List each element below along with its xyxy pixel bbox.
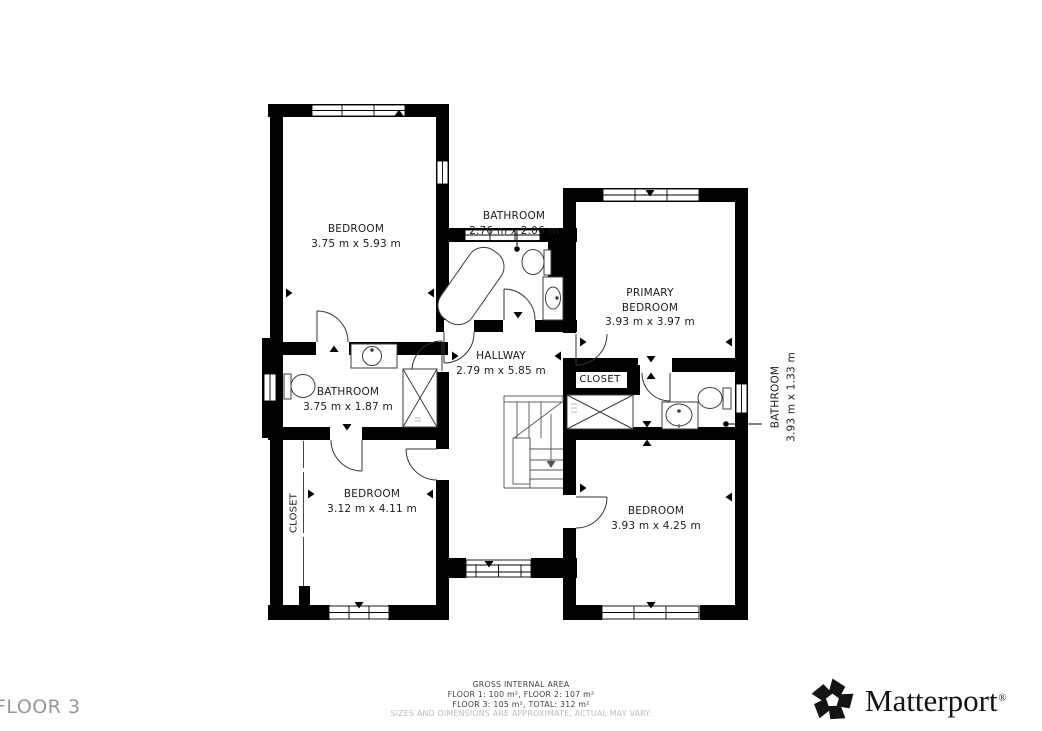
door xyxy=(317,311,348,342)
matterport-pinwheel-icon xyxy=(809,677,856,724)
window xyxy=(312,105,405,116)
room-name: PRIMARY xyxy=(605,286,695,301)
room-label-bedroom-top-left: BEDROOM 3.75 m x 5.93 m xyxy=(311,222,401,251)
staircase xyxy=(504,396,563,488)
room-name: BEDROOM xyxy=(605,301,695,316)
door xyxy=(642,373,670,401)
toilet-icon xyxy=(522,250,551,276)
room-dimensions: 3.93 m x 4.25 m xyxy=(611,519,701,534)
room-name: BATHROOM xyxy=(769,352,785,442)
floor-plan-page: BEDROOM 3.75 m x 5.93 m BATHROOM 2.76 m … xyxy=(0,0,1042,731)
stairs-down-arrow-icon xyxy=(547,461,556,468)
room-dimensions: 3.93 m x 1.33 m xyxy=(784,352,800,442)
room-label-bathroom-right: BATHROOM 3.93 m x 1.33 m xyxy=(769,352,800,442)
sink-icon xyxy=(351,344,397,368)
window xyxy=(736,384,747,413)
matterport-logo: Matterport® xyxy=(809,677,1006,724)
room-label-hallway: HALLWAY 2.79 m x 5.85 m xyxy=(456,349,546,378)
room-name: BEDROOM xyxy=(311,222,401,237)
room-label-bathroom-top: BATHROOM 2.76 m x 2.06 m xyxy=(469,209,559,238)
door xyxy=(406,449,437,480)
room-name: BEDROOM xyxy=(327,487,417,502)
room-dimensions: 3.75 m x 5.93 m xyxy=(311,237,401,252)
toilet-icon xyxy=(698,388,731,410)
room-name: BEDROOM xyxy=(611,504,701,519)
room-label-closet-left: CLOSET xyxy=(286,493,302,533)
window xyxy=(602,606,699,619)
door xyxy=(576,497,607,528)
room-dimensions: 2.79 m x 5.85 m xyxy=(456,364,546,379)
room-label-primary-bedroom: PRIMARY BEDROOM 3.93 m x 3.97 m xyxy=(605,286,695,330)
room-dimensions: 2.76 m x 2.06 m xyxy=(469,224,559,239)
room-dimensions: 3.93 m x 3.97 m xyxy=(605,315,695,330)
window xyxy=(466,560,531,577)
room-label-closet-right: CLOSET xyxy=(579,374,620,385)
room-label-bathroom-left: BATHROOM 3.75 m x 1.87 m xyxy=(303,385,393,414)
window xyxy=(264,374,276,401)
room-name: HALLWAY xyxy=(456,349,546,364)
door xyxy=(331,440,362,471)
registered-trademark-symbol: ® xyxy=(999,693,1007,704)
room-name: BATHROOM xyxy=(303,385,393,400)
window xyxy=(437,161,448,184)
room-label-bedroom-bottom-right: BEDROOM 3.93 m x 4.25 m xyxy=(611,504,701,533)
room-name: BATHROOM xyxy=(469,209,559,224)
room-label-bedroom-bottom-left: BEDROOM 3.12 m x 4.11 m xyxy=(327,487,417,516)
matterport-wordmark: Matterport xyxy=(865,683,998,718)
room-dimensions: 3.75 m x 1.87 m xyxy=(303,400,393,415)
sink-icon xyxy=(543,277,563,320)
room-dimensions: 3.12 m x 4.11 m xyxy=(327,502,417,517)
sink-icon xyxy=(662,402,698,429)
